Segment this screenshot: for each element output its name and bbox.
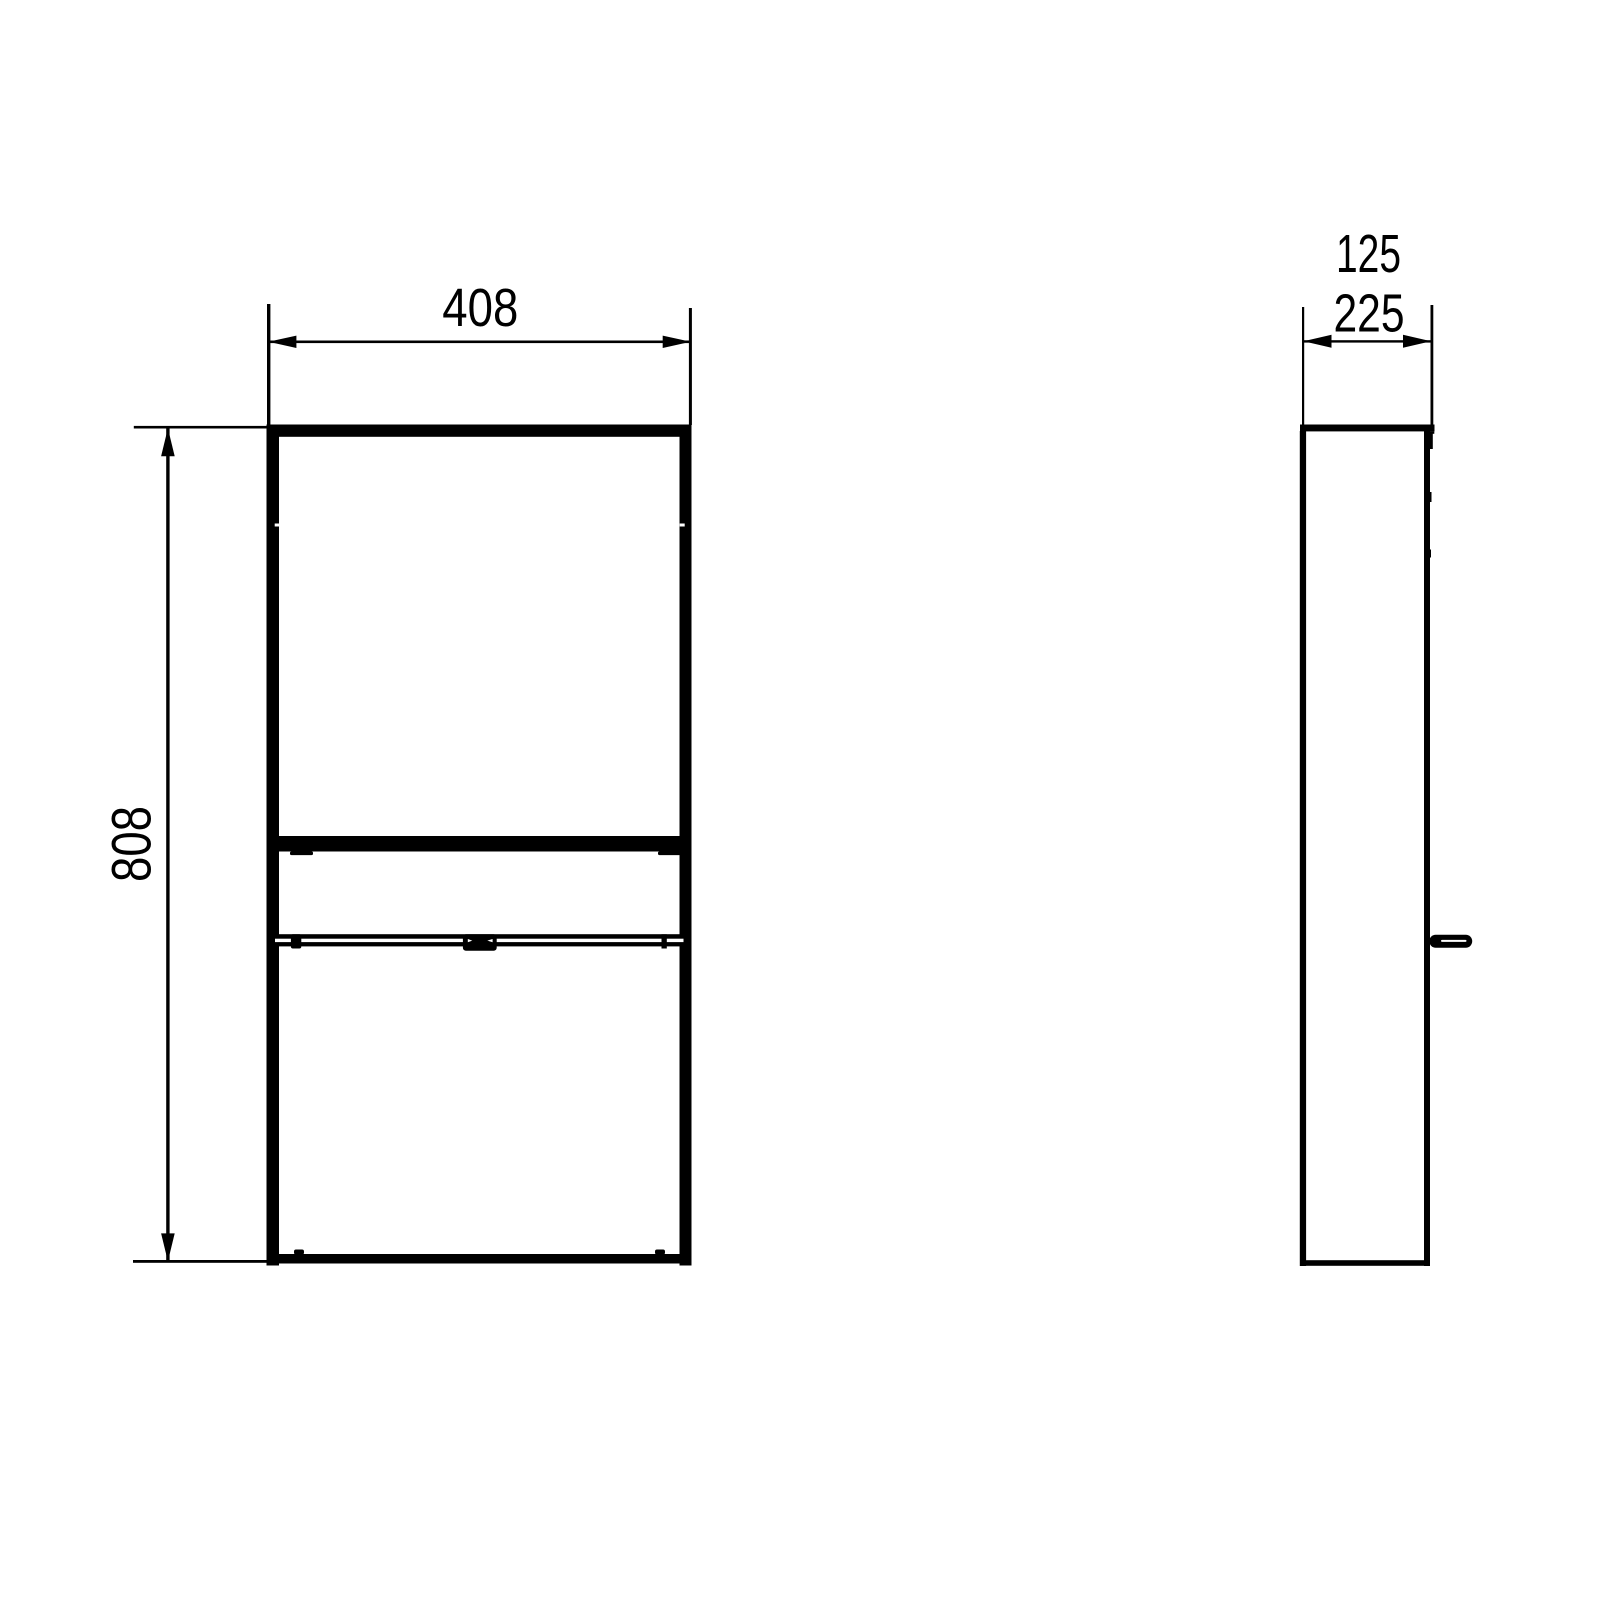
svg-text:408: 408 [442, 278, 518, 338]
svg-text:125: 125 [1336, 224, 1401, 284]
svg-text:808: 808 [100, 806, 163, 882]
svg-text:225: 225 [1334, 284, 1405, 344]
